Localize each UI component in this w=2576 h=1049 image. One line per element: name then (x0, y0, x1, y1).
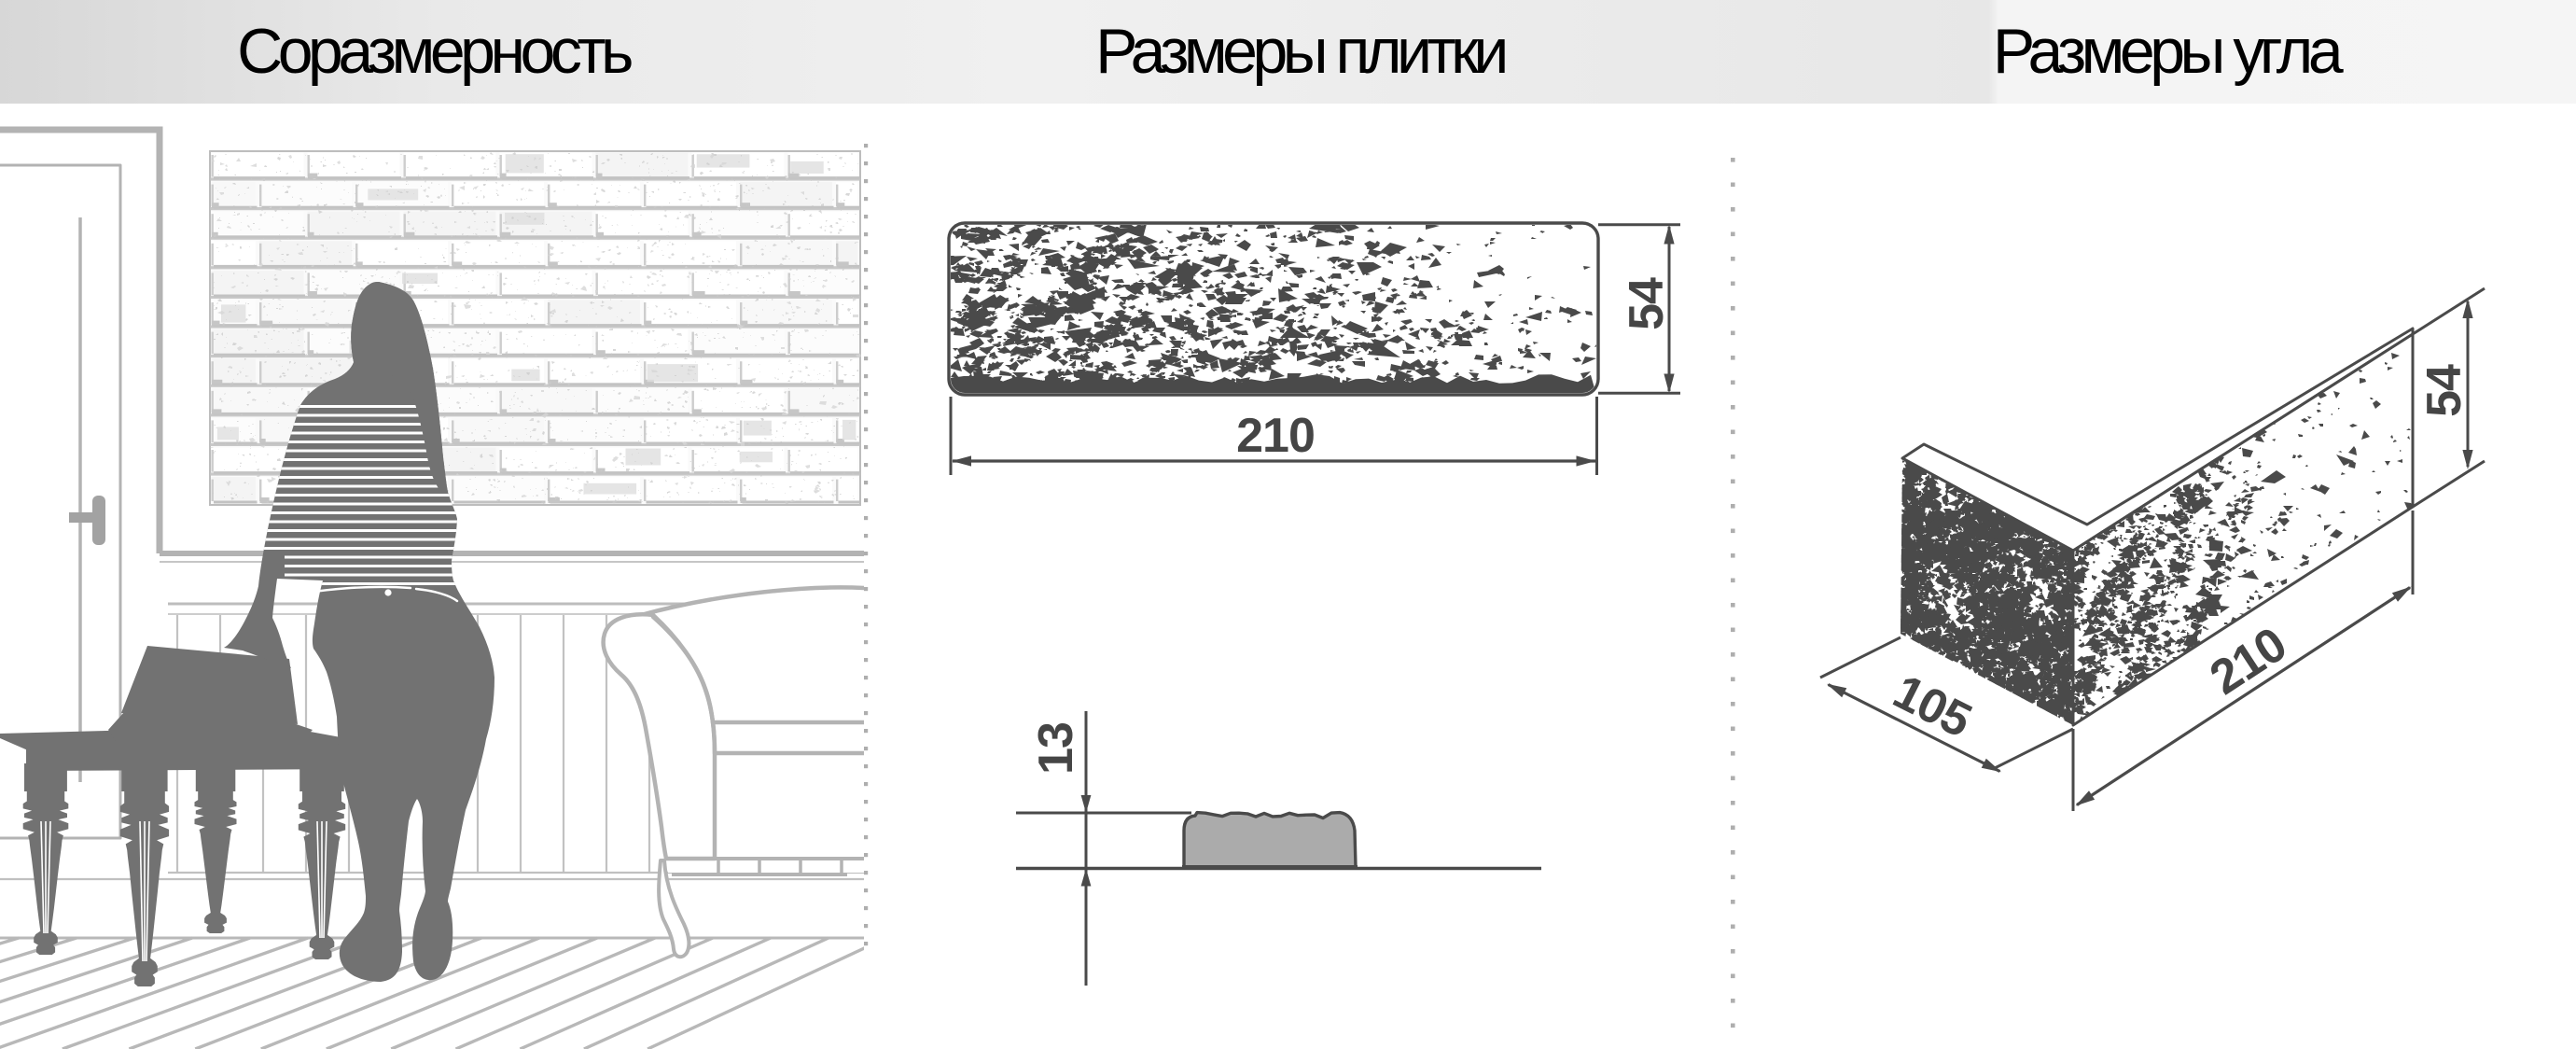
svg-text:54: 54 (2417, 364, 2472, 417)
svg-text:13: 13 (1029, 722, 1083, 775)
svg-text:Соразмерность: Соразмерность (237, 16, 632, 87)
svg-text:Размеры плитки: Размеры плитки (1095, 16, 1505, 87)
svg-text:210: 210 (1236, 409, 1315, 463)
svg-text:54: 54 (1620, 277, 1674, 330)
svg-text:Размеры угла: Размеры угла (1993, 16, 2344, 87)
